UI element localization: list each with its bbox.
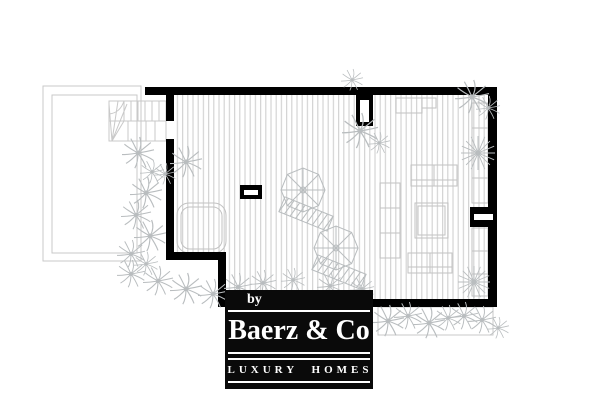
floor-plan-page: by Baerz & Co LUXURY HOMES: [0, 0, 600, 401]
wall-step-horizontal: [166, 252, 226, 260]
window-symbol-right: [470, 207, 497, 227]
logo-divider-bottom: [228, 381, 370, 383]
floor-marker: [240, 185, 262, 199]
logo-tagline: LUXURY HOMES: [227, 361, 373, 379]
adjacent-terrace-outline: [43, 86, 141, 261]
wall-top: [145, 87, 497, 95]
wall-left-upper: [166, 87, 174, 121]
wall-right: [488, 87, 497, 307]
logo-brand-name: Baerz & Co: [225, 311, 373, 351]
logo-double-divider: [228, 352, 370, 360]
wall-left-lower: [166, 139, 174, 260]
staircase: [109, 101, 166, 141]
baerz-logo: by Baerz & Co LUXURY HOMES: [225, 290, 373, 389]
logo-by-text: by: [247, 291, 262, 309]
door-symbol-top: [356, 95, 373, 126]
